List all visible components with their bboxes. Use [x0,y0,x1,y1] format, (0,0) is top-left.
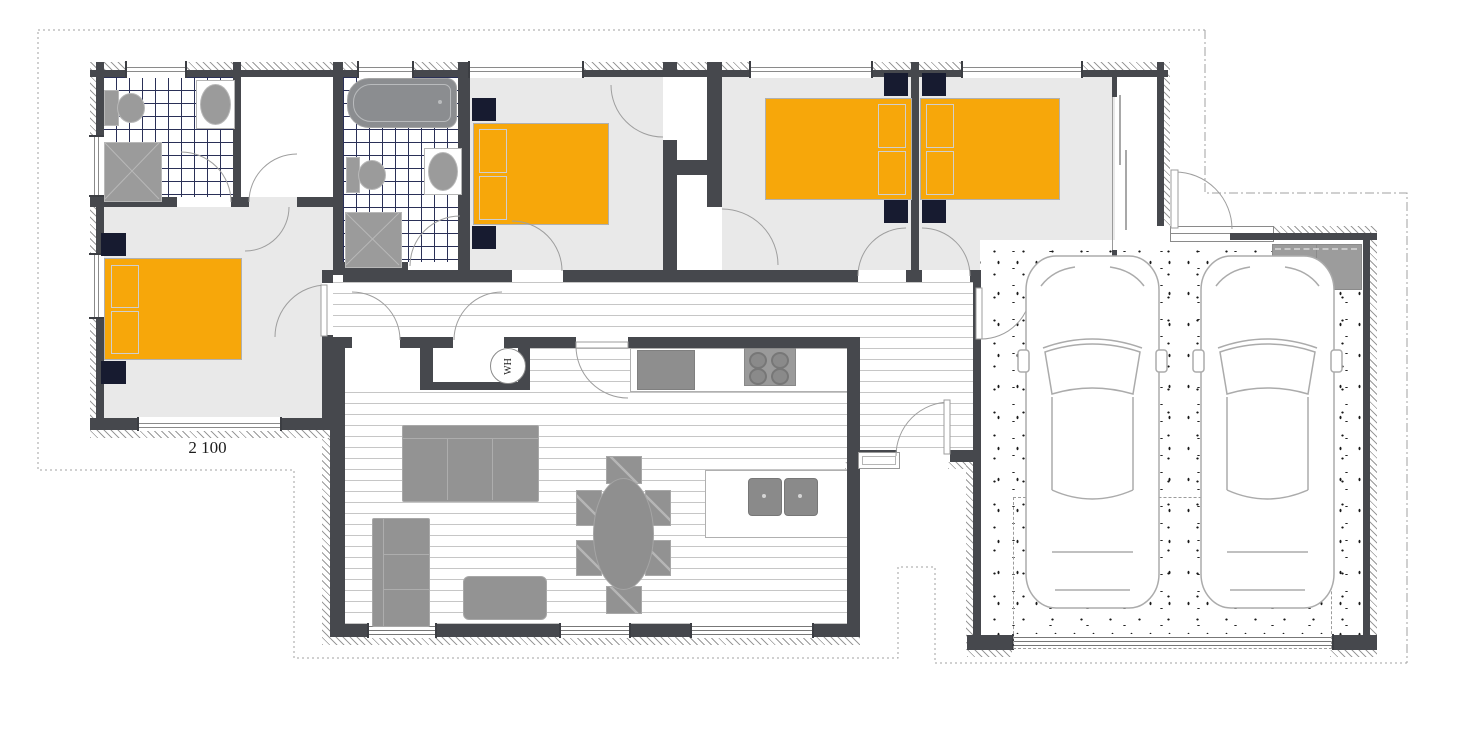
loveseat-back-line [383,519,384,626]
bedroom4-pillow-1 [926,104,954,148]
ensuite-sink [200,84,231,125]
back-door-step-inner [862,456,896,465]
window-top-1 [125,61,187,78]
bedroom2-pillow-2 [479,176,507,220]
door-swing-front-entry [1175,172,1232,229]
sofa-cushion-line [492,438,493,500]
corridor-right-wood-floor [860,337,973,450]
bedroom4-bed [920,98,1060,200]
bathtub-inner [353,84,451,122]
sink-basin-left [748,478,782,516]
wall-closet-column-left [663,140,677,270]
wall-closet-column-right [707,62,722,207]
mainbath-sink [428,152,458,191]
corridor-wood-floor [333,282,973,337]
garage-hatch-bottom-left [967,650,1012,657]
ensuite-shower [104,142,162,202]
bedroom2-pillow-1 [479,129,507,173]
bedroom2-nightstand-bottom [472,226,496,249]
wall-bedroom4-closet-stub-bottom [1112,250,1117,270]
wall-corridor-c [504,337,576,348]
master-nightstand-top [101,233,126,256]
bedroom4-nightstand-top [922,73,946,96]
coffee-table [463,576,547,620]
exterior-hatch-living-bottom [322,637,860,645]
garage-hatch-right [1370,226,1377,657]
water-heater-label: WH [502,358,513,375]
wall-corridorstrip-bottom-b [950,450,975,462]
back-door-step [858,452,900,469]
burner-icon [771,368,789,385]
window-living-bottom-2 [559,623,631,638]
bedroom4-closet-slider-door [1125,150,1127,230]
bedroom4-nightstand-bottom [922,200,946,223]
wall-garage-right [1363,233,1370,650]
bedroom4-closet-slider-door [1119,95,1121,165]
wall-living-left [330,337,345,637]
wall-master-right-stub [322,270,333,283]
mainbath-toilet-bowl [358,160,386,190]
master-pillow-2 [111,311,139,354]
garage-cabinet-dash [1275,248,1357,250]
master-bed [104,258,242,360]
master-pillow-1 [111,265,139,308]
loveseat-cushion-line [383,589,429,590]
garage-cabinet [1272,244,1362,290]
window-top-bedroom3 [749,61,873,78]
wall-kitchen-top [628,337,860,348]
bedroom3-pillow-2 [878,151,906,195]
wall-bedroomrow-bottom-c [906,270,922,282]
exterior-hatch-living-left [322,438,330,645]
wall-whcloset-bottom [420,382,530,390]
sofa-back-line [403,438,538,439]
dining-table [593,478,654,590]
fridge [637,350,695,390]
bedroom2-bed [473,123,609,225]
ensuite-toilet-bowl [117,93,145,123]
bathtub [347,78,457,128]
wall-right-exterior [1157,62,1164,226]
wall-mainbath-left [333,62,343,262]
wall-garage-top-over [1230,233,1377,240]
wall-bedroom3-4-divider [911,62,919,270]
wall-corridor-b [400,337,453,348]
loveseat-cushion-line [383,554,429,555]
wall-closet-column-left-cap [663,62,677,77]
window-top-bedroom4 [961,61,1083,78]
bathtub-drain [438,100,442,104]
water-heater: WH [490,348,526,384]
sofa-cushion-line [447,438,448,500]
window-living-bottom-3 [690,623,814,638]
walk-in-robe-floor [241,77,333,197]
wall-bedroom4-closet-stub-top [1112,77,1117,97]
wall-living-right [847,337,860,637]
hallway-nook-floor [241,197,333,282]
bedroom3-nightstand-top [884,73,908,96]
front-door-leaf [1171,170,1178,228]
loveseat [372,518,430,627]
wall-bath-block-bottom-c [297,197,333,207]
wall-garage-left [973,282,981,650]
exterior-hatch-master-bottom [90,430,330,438]
burner-icon [749,352,767,369]
dining-chair [606,586,642,614]
bedroom3-bed [765,98,912,200]
sofa [402,425,539,502]
bedroom4-closet-slider-track [1112,97,1113,250]
master-nightstand-bottom [101,361,126,384]
sink-drain-icon [762,494,766,498]
burner-icon [749,368,767,385]
bedroom4-pillow-2 [926,151,954,195]
window-left-ensuite [89,135,104,197]
burner-icon [771,352,789,369]
exterior-hatch-right [1163,62,1170,226]
mainbath-shower [345,212,402,268]
hatch-backdoor-right [948,462,966,469]
window-top-2 [357,61,414,78]
bedroom3-nightstand-bottom [884,200,908,223]
garage-cabinet-divider [1316,245,1317,289]
garage-hatch-bottom-right [1330,650,1377,657]
garage-door-clearance-dashed [1013,497,1332,649]
dimension-label: 2 100 [160,438,255,458]
wall-bedroomrow-bottom-d [970,270,981,282]
garage-hatch-left [966,455,973,650]
bedroom2-nightstand-top [472,98,496,121]
floor-plan-canvas: WH [0,0,1470,736]
window-master-bottom [137,417,282,431]
sink-drain-icon [798,494,802,498]
bedroom3-pillow-1 [878,104,906,148]
stove-cooktop [744,348,796,386]
wall-bedroomrow-bottom-b [563,270,858,282]
window-left-master [89,253,104,319]
window-top-bedroom2 [468,61,584,78]
wall-bath-block-bottom-b [231,197,249,207]
wall-corridor-a [333,337,352,348]
wall-closet-column-divider [677,160,707,175]
wall-bedroomrow-bottom-a [343,270,512,282]
sink-basin-right [784,478,818,516]
